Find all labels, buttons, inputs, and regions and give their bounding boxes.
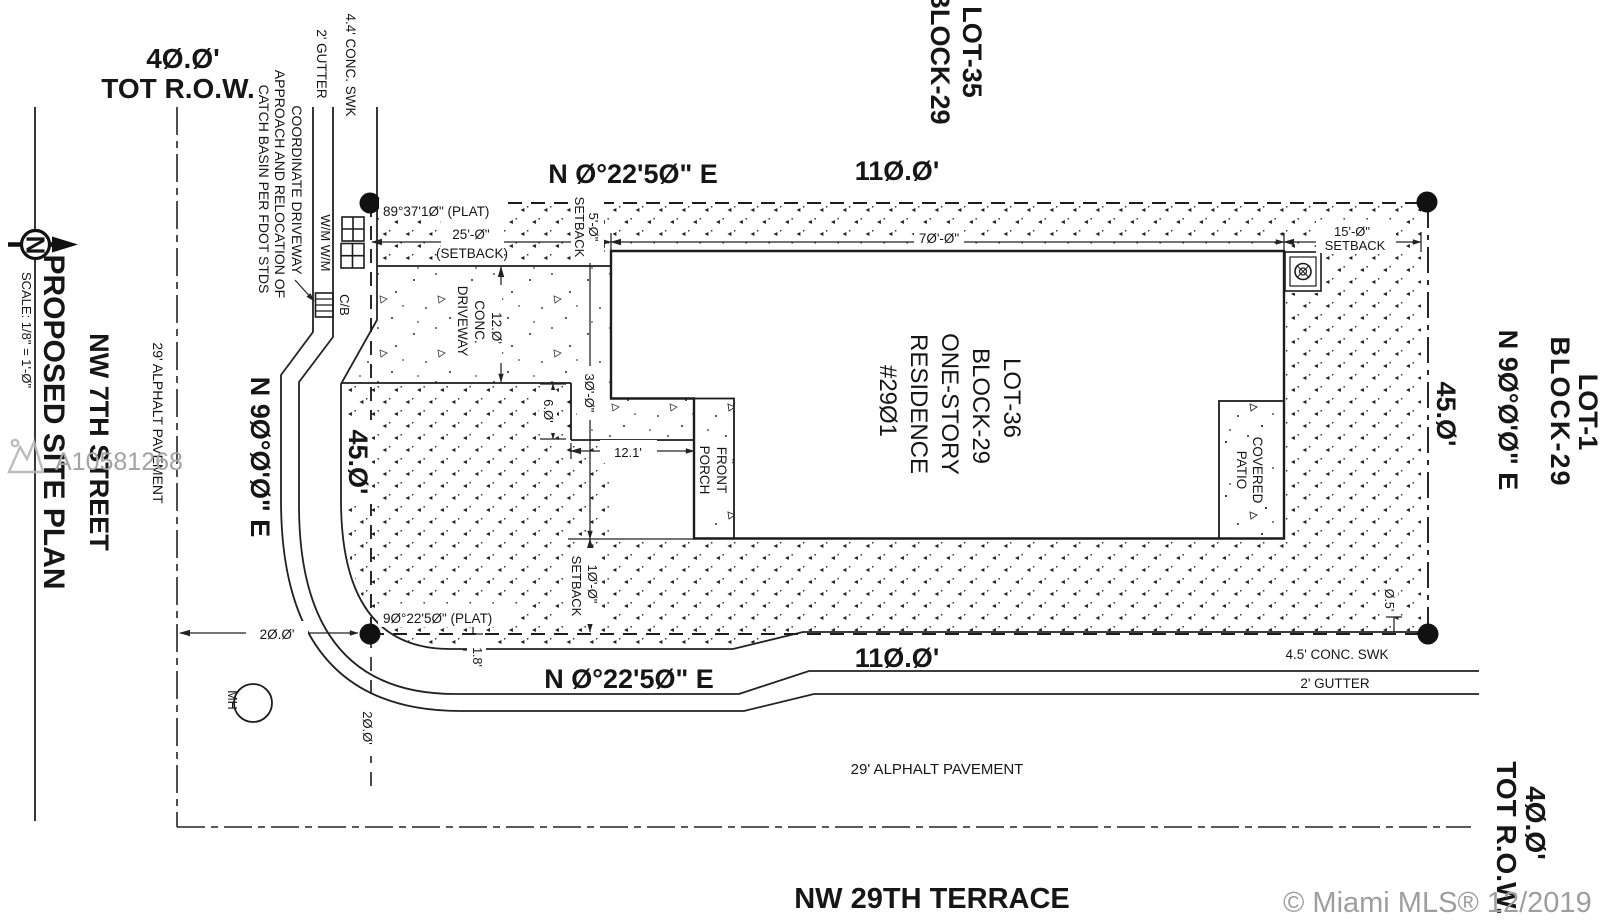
svg-text:APPROACH AND RELOCATION OF: APPROACH AND RELOCATION OF bbox=[272, 70, 288, 298]
svg-text:N 9Ø°Ø'Ø" E: N 9Ø°Ø'Ø" E bbox=[245, 377, 275, 538]
svg-text:7Ø'-Ø": 7Ø'-Ø" bbox=[919, 231, 960, 246]
svg-text:45.Ø': 45.Ø' bbox=[343, 430, 373, 495]
svg-text:4.4' CONC. SWK: 4.4' CONC. SWK bbox=[343, 13, 358, 116]
svg-text:25'-Ø": 25'-Ø" bbox=[452, 227, 490, 242]
svg-text:9Ø°22'5Ø" (PLAT): 9Ø°22'5Ø" (PLAT) bbox=[383, 611, 492, 626]
svg-text:4.5' CONC. SWK: 4.5' CONC. SWK bbox=[1285, 647, 1388, 662]
svg-text:COVERED: COVERED bbox=[1250, 437, 1265, 504]
svg-text:LOT-1: LOT-1 bbox=[1573, 374, 1600, 451]
svg-text:11Ø.Ø': 11Ø.Ø' bbox=[855, 643, 939, 673]
svg-text:45.Ø': 45.Ø' bbox=[1431, 382, 1461, 447]
svg-text:N Ø°22'5Ø" E: N Ø°22'5Ø" E bbox=[548, 159, 718, 189]
svg-text:Ø.5': Ø.5' bbox=[1382, 589, 1396, 612]
svg-text:29' ALPHALT PAVEMENT: 29' ALPHALT PAVEMENT bbox=[150, 342, 166, 504]
svg-text:RESIDENCE: RESIDENCE bbox=[905, 334, 932, 474]
svg-text:12.1': 12.1' bbox=[614, 445, 642, 460]
svg-text:A10581268: A10581268 bbox=[55, 448, 183, 476]
svg-text:COORDINATE DRIVEWAY: COORDINATE DRIVEWAY bbox=[289, 105, 305, 275]
svg-text:© Miami MLS® 12/2019: © Miami MLS® 12/2019 bbox=[1283, 887, 1592, 919]
svg-text:11Ø.Ø': 11Ø.Ø' bbox=[855, 156, 939, 186]
svg-text:12.Ø': 12.Ø' bbox=[489, 312, 504, 344]
svg-text:3Ø'-Ø": 3Ø'-Ø" bbox=[582, 374, 597, 413]
svg-text:BLOCK-29: BLOCK-29 bbox=[967, 348, 994, 464]
svg-text:LOT-35: LOT-35 bbox=[957, 6, 987, 98]
svg-text:1.8': 1.8' bbox=[470, 647, 484, 667]
svg-text:PORCH: PORCH bbox=[697, 446, 712, 495]
svg-text:2Ø.Ø': 2Ø.Ø' bbox=[360, 711, 375, 745]
svg-text:CATCH BASIN PER FDOT STDS: CATCH BASIN PER FDOT STDS bbox=[256, 85, 272, 294]
svg-text:SETBACK: SETBACK bbox=[1325, 238, 1386, 253]
svg-text:N: N bbox=[21, 236, 51, 255]
svg-text:2Ø.Ø': 2Ø.Ø' bbox=[260, 627, 295, 642]
svg-text:2' GUTTER: 2' GUTTER bbox=[1300, 676, 1370, 691]
svg-text:N Ø°22'5Ø" E: N Ø°22'5Ø" E bbox=[544, 664, 714, 694]
svg-text:#29Ø1: #29Ø1 bbox=[874, 365, 901, 437]
svg-text:N 9Ø°Ø'Ø" E: N 9Ø°Ø'Ø" E bbox=[1493, 330, 1523, 491]
svg-text:MH: MH bbox=[225, 690, 239, 709]
svg-text:1Ø'-Ø": 1Ø'-Ø" bbox=[585, 565, 600, 604]
svg-text:PATIO: PATIO bbox=[1234, 451, 1249, 490]
svg-text:SCALE: 1/8" = 1'-Ø": SCALE: 1/8" = 1'-Ø" bbox=[19, 272, 34, 389]
svg-text:15'-Ø": 15'-Ø" bbox=[1334, 224, 1370, 239]
svg-text:W/M W/M: W/M W/M bbox=[318, 214, 333, 271]
svg-text:4Ø.Ø': 4Ø.Ø' bbox=[1520, 786, 1551, 860]
svg-text:SETBACK: SETBACK bbox=[572, 197, 587, 258]
svg-text:FRONT: FRONT bbox=[714, 447, 729, 494]
svg-text:TOT R.O.W.: TOT R.O.W. bbox=[101, 73, 254, 104]
svg-text:4Ø.Ø': 4Ø.Ø' bbox=[146, 43, 220, 74]
svg-text:6.Ø': 6.Ø' bbox=[541, 399, 556, 422]
svg-text:ONE-STORY: ONE-STORY bbox=[936, 333, 963, 475]
svg-text:(SETBACK): (SETBACK) bbox=[436, 246, 508, 261]
svg-text:5'-Ø": 5'-Ø" bbox=[586, 213, 601, 242]
svg-text:CONC.: CONC. bbox=[472, 300, 487, 344]
svg-text:NW 29TH TERRACE: NW 29TH TERRACE bbox=[794, 883, 1070, 915]
svg-text:BLOCK-29: BLOCK-29 bbox=[1545, 336, 1575, 487]
svg-text:C/B: C/B bbox=[337, 294, 352, 316]
svg-text:89°37'1Ø" (PLAT): 89°37'1Ø" (PLAT) bbox=[383, 204, 489, 219]
svg-text:29' ALPHALT PAVEMENT: 29' ALPHALT PAVEMENT bbox=[851, 761, 1024, 778]
svg-text:DRIVEWAY: DRIVEWAY bbox=[455, 286, 470, 357]
svg-text:NW 7TH STREET: NW 7TH STREET bbox=[84, 333, 114, 551]
svg-text:SETBACK: SETBACK bbox=[569, 556, 584, 617]
svg-text:2' GUTTER: 2' GUTTER bbox=[314, 29, 329, 99]
svg-text:BLOCK-29: BLOCK-29 bbox=[925, 0, 955, 125]
svg-text:PROPOSED SITE PLAN: PROPOSED SITE PLAN bbox=[37, 254, 70, 589]
svg-text:LOT-36: LOT-36 bbox=[998, 358, 1025, 438]
